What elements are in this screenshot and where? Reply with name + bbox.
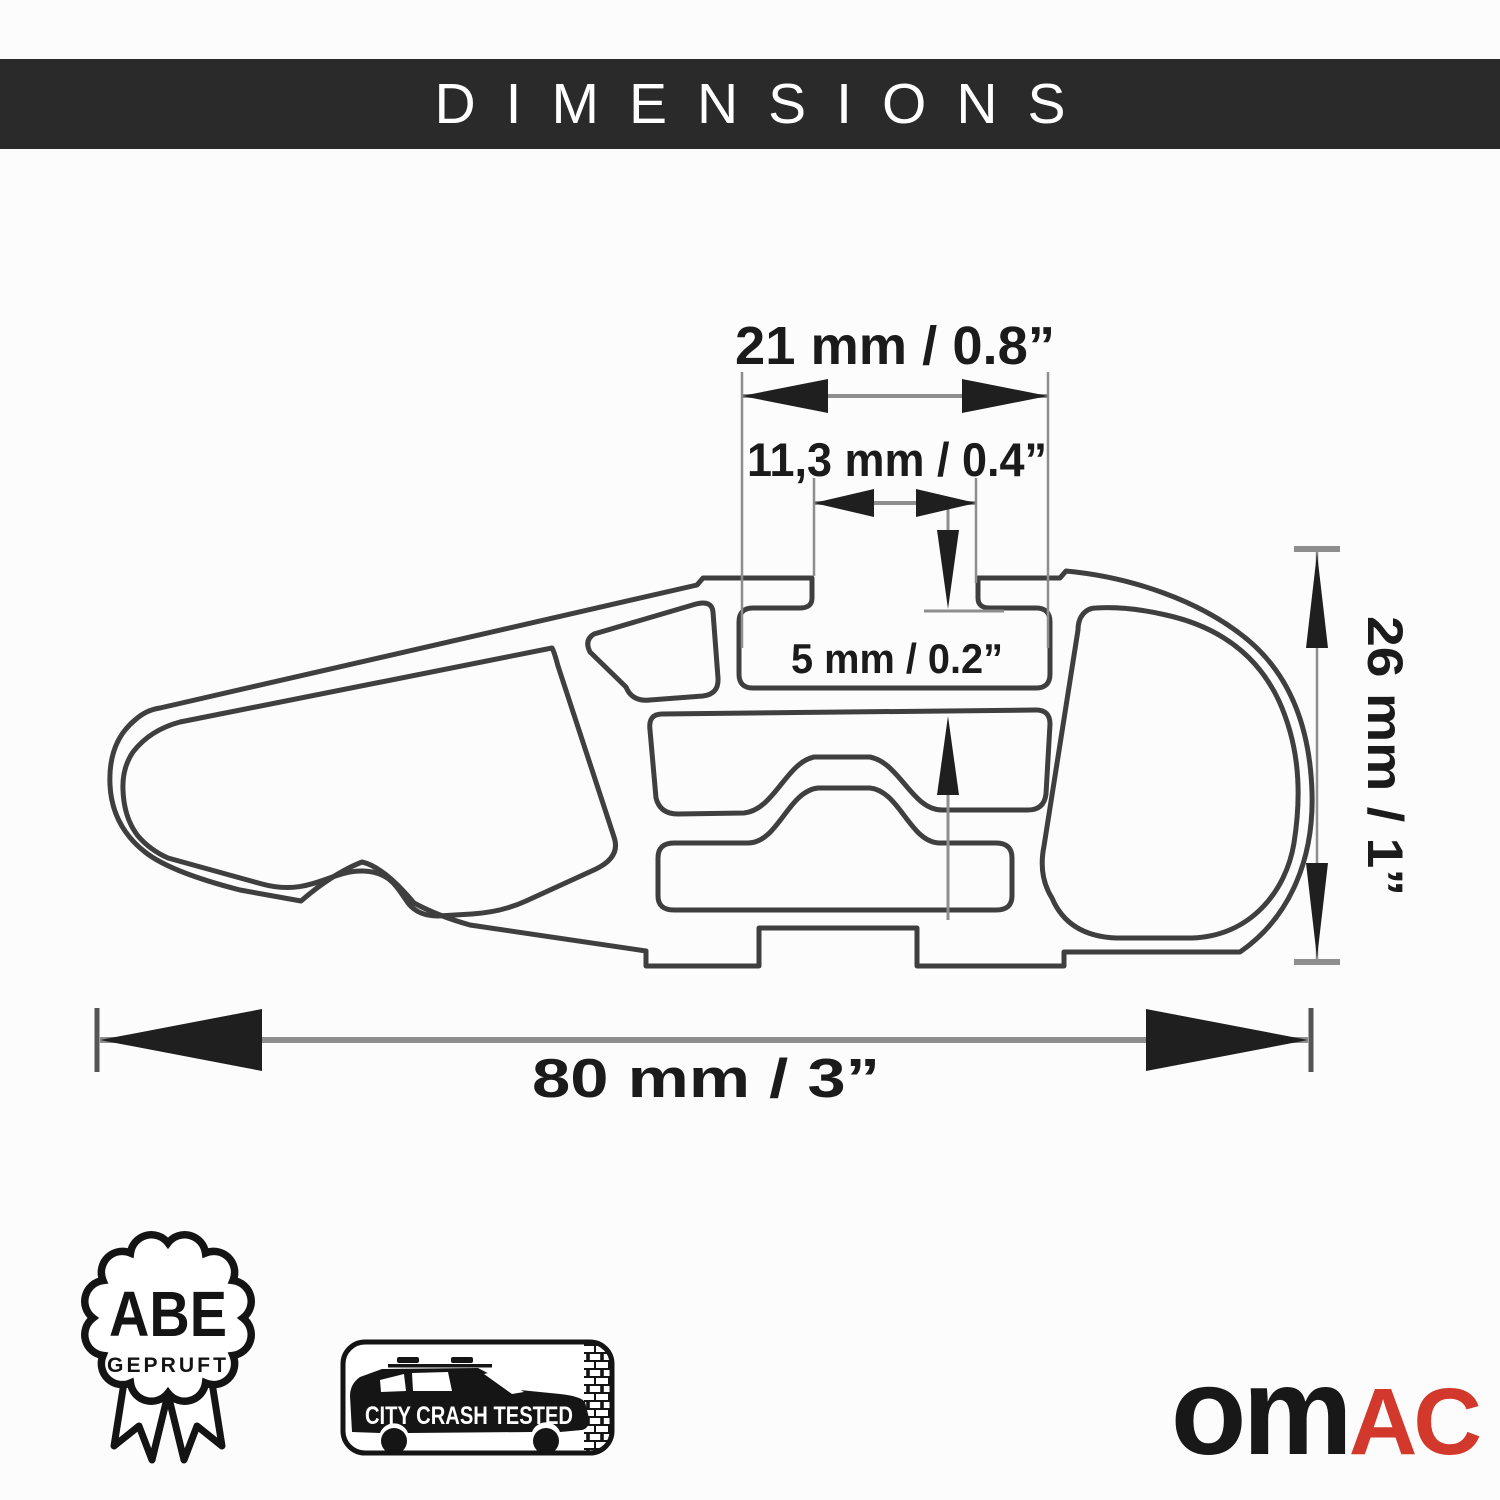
crossbar-profile xyxy=(110,571,1312,966)
arrow-80-left xyxy=(100,1009,262,1071)
profile-lower-cavity xyxy=(658,788,1012,910)
car-roof-bar-1 xyxy=(397,1357,419,1363)
profile-outer-contour xyxy=(110,571,1312,966)
label-bar-width: 80 mm / 3” xyxy=(532,1047,880,1109)
car-rear-wheel xyxy=(381,1428,407,1454)
page: DIMENSIONS xyxy=(0,0,1500,1500)
crash-test-badge: CITY CRASH TESTED xyxy=(343,1342,612,1454)
brick-wall xyxy=(584,1342,612,1453)
abe-title: ABE xyxy=(109,1278,227,1350)
brand-logo: omAC xyxy=(1171,1350,1478,1474)
arrow-26-bottom xyxy=(1306,863,1328,958)
profile-middle-cavity xyxy=(650,710,1050,814)
label-opening-width: 11,3 mm / 0.4” xyxy=(747,433,1047,486)
arrow-5-up xyxy=(937,716,959,795)
brand-logo-red-part: AC xyxy=(1349,1375,1478,1470)
label-bar-height: 26 mm / 1” xyxy=(1357,616,1413,896)
car-front-wheel xyxy=(533,1428,559,1454)
profile-upper-middle-cavity xyxy=(588,603,718,700)
arrow-80-right xyxy=(1146,1009,1308,1071)
label-slot-depth: 5 mm / 0.2” xyxy=(791,635,1003,682)
arrow-11-left xyxy=(814,489,874,517)
abe-badge: ABE GEPRUFT xyxy=(85,1235,251,1460)
arrow-26-top xyxy=(1306,553,1328,648)
arrow-21-left xyxy=(742,379,828,413)
car-roof-rail xyxy=(388,1364,492,1368)
arrow-5-down xyxy=(937,530,959,609)
brand-logo-black-part: om xyxy=(1171,1350,1349,1474)
profile-right-bulb-cavity xyxy=(1042,608,1298,938)
label-channel-width: 21 mm / 0.8” xyxy=(735,316,1055,376)
technical-drawing-svg: 21 mm / 0.8” 11,3 mm / 0.4” 5 mm / 0.2” … xyxy=(0,0,1500,1500)
car-roof-bar-2 xyxy=(451,1357,473,1363)
arrow-21-right xyxy=(962,379,1048,413)
arrow-11-right xyxy=(916,489,976,517)
abe-subtitle: GEPRUFT xyxy=(107,1354,229,1377)
crash-badge-label: CITY CRASH TESTED xyxy=(365,1402,573,1430)
